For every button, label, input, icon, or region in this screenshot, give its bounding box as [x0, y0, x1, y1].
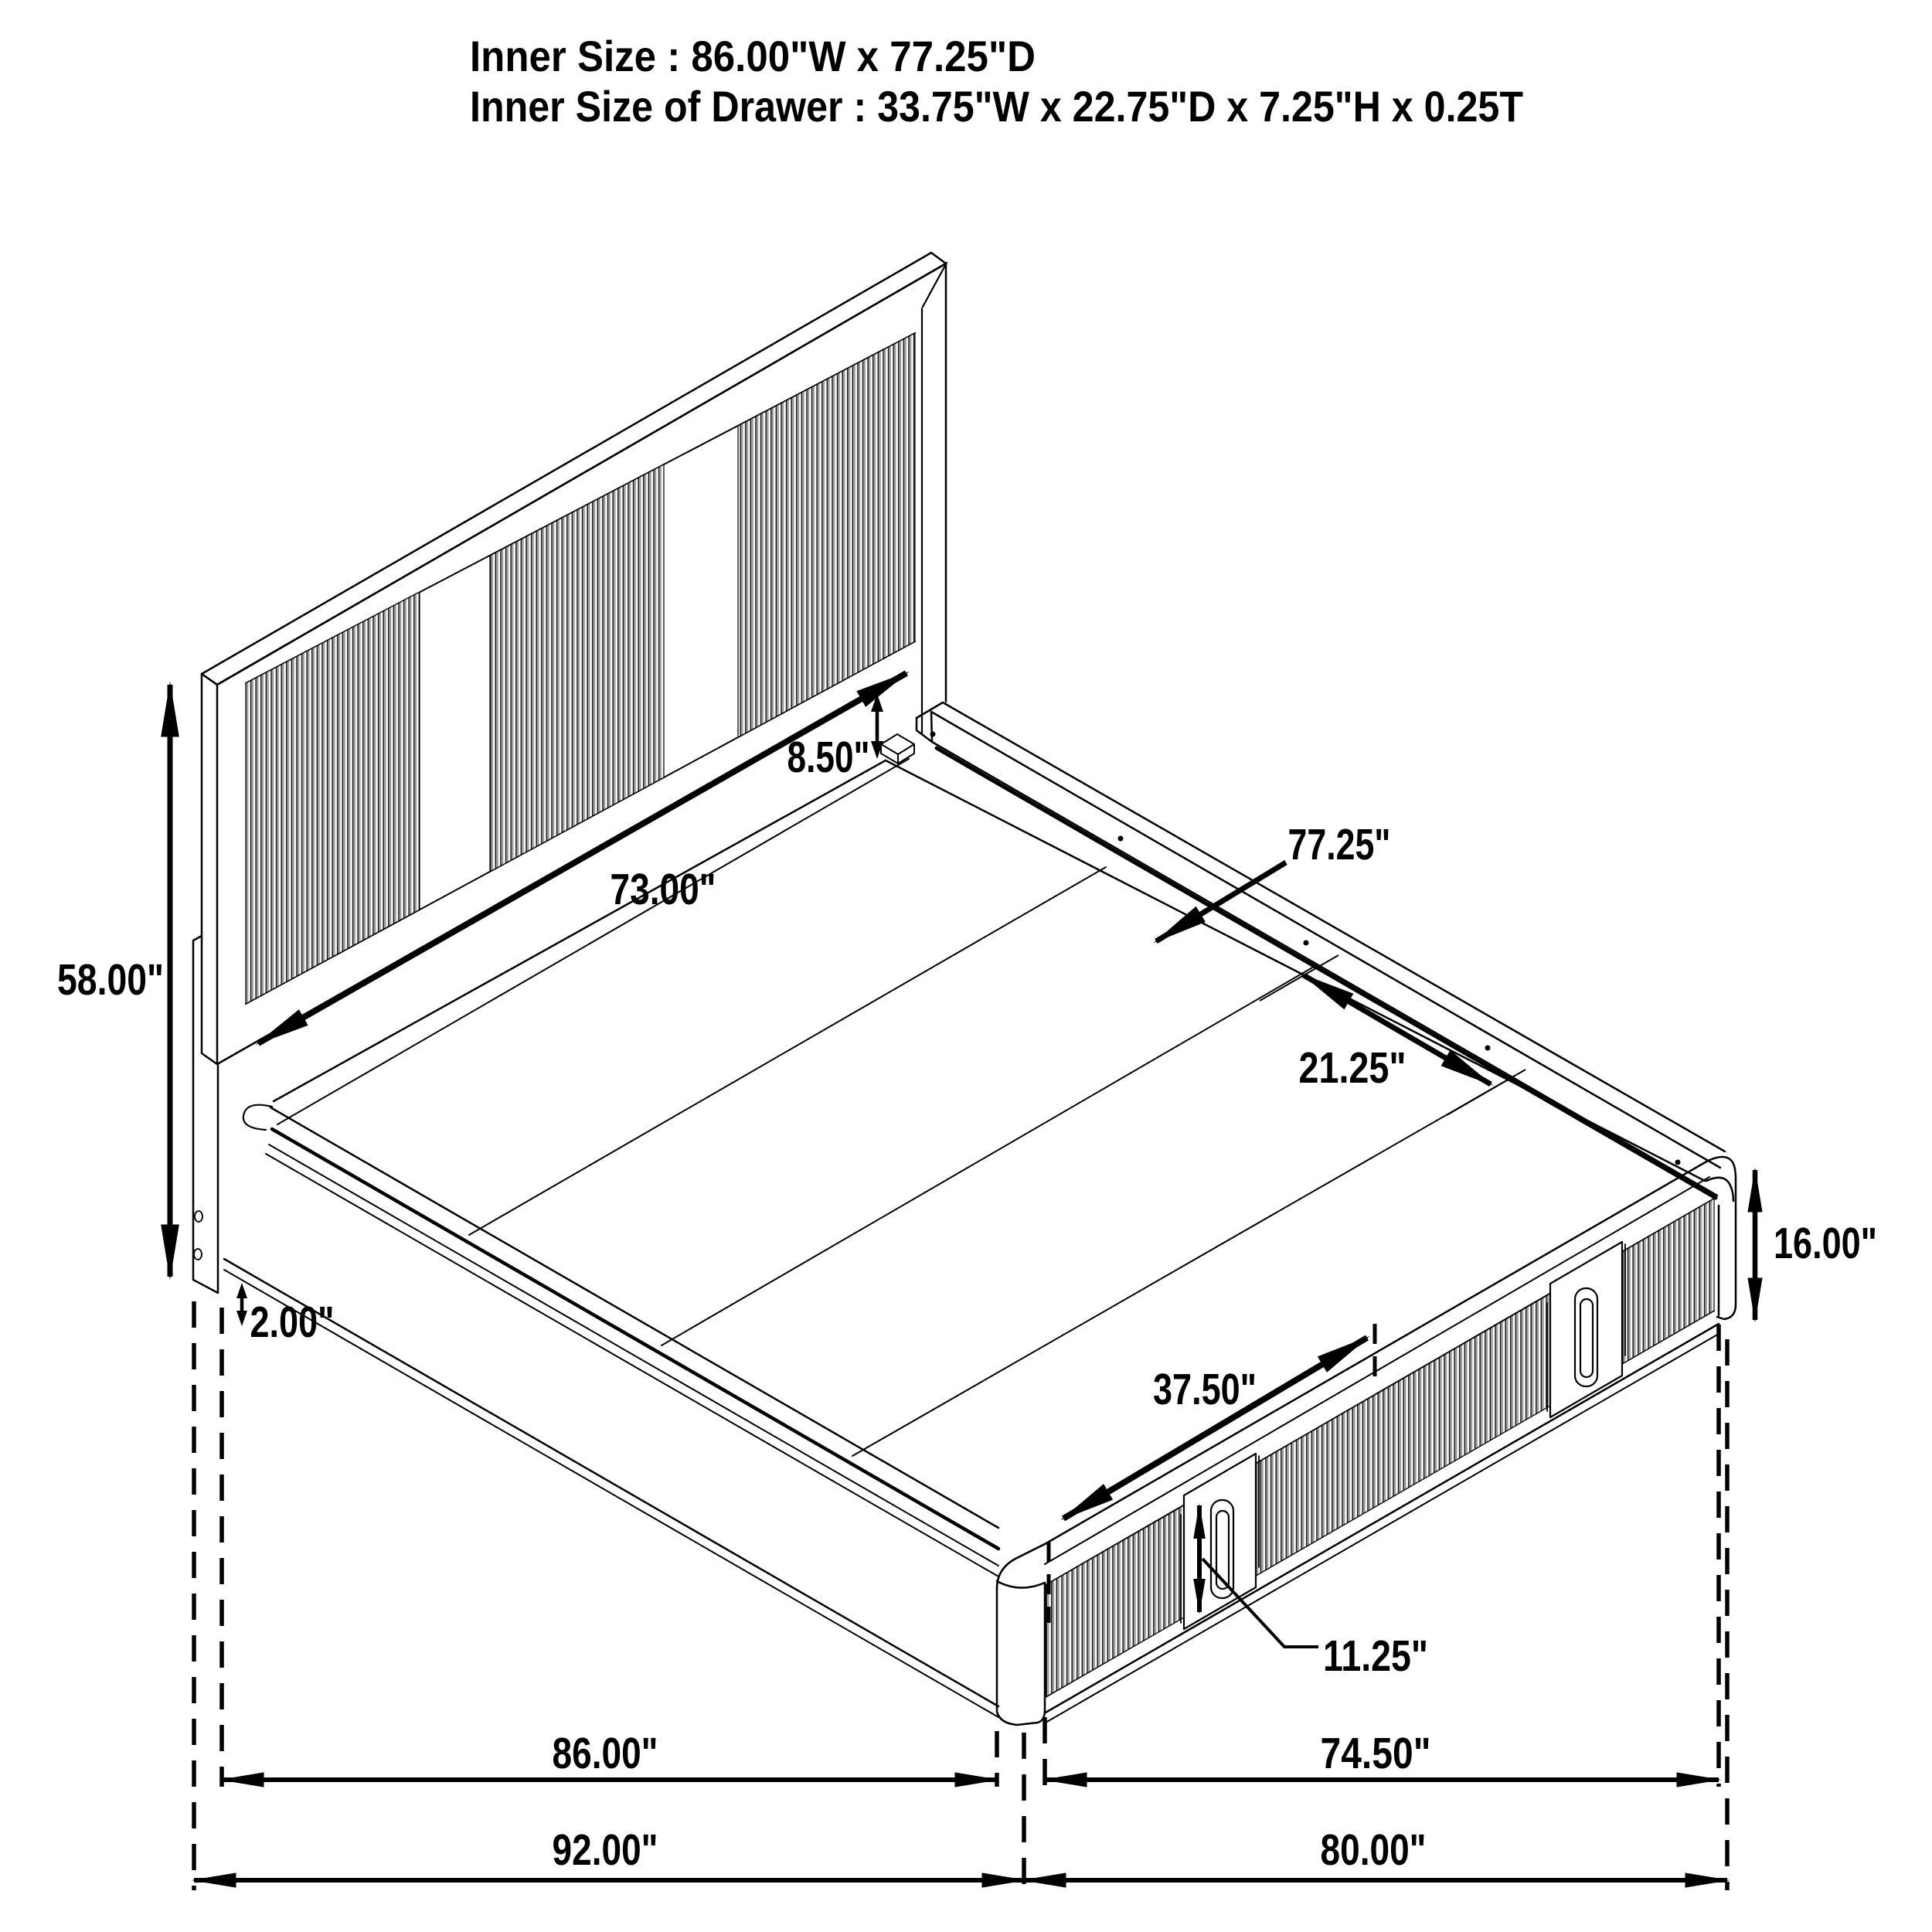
svg-text:92.00": 92.00" — [553, 1825, 658, 1875]
svg-text:37.50": 37.50" — [1153, 1365, 1257, 1414]
svg-text:73.00": 73.00" — [611, 865, 716, 914]
svg-text:21.25": 21.25" — [1299, 1043, 1406, 1093]
svg-text:86.00": 86.00" — [553, 1729, 658, 1778]
svg-text:58.00": 58.00" — [57, 955, 164, 1005]
svg-text:16.00": 16.00" — [1774, 1219, 1877, 1268]
svg-text:77.25": 77.25" — [1288, 820, 1391, 869]
svg-text:80.00": 80.00" — [1321, 1825, 1427, 1875]
svg-text:11.25": 11.25" — [1323, 1631, 1428, 1681]
svg-text:Inner Size of Drawer : 33.75"W: Inner Size of Drawer : 33.75"W x 22.75"D… — [470, 82, 1523, 131]
svg-text:Inner Size : 86.00"W x 77.25"D: Inner Size : 86.00"W x 77.25"D — [470, 32, 1036, 80]
svg-text:74.50": 74.50" — [1321, 1729, 1431, 1778]
svg-text:2.00": 2.00" — [250, 1298, 335, 1347]
svg-text:8.50": 8.50" — [787, 733, 870, 782]
